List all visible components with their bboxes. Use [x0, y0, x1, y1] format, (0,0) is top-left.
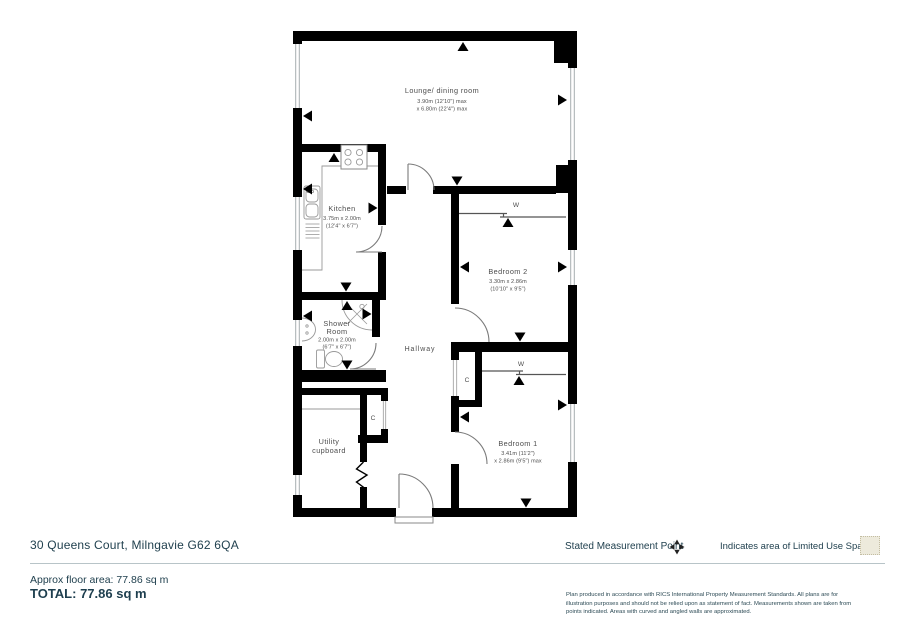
- basin-icon: [302, 318, 316, 341]
- bedroom1-door: [455, 432, 487, 464]
- limited-use-swatch: [860, 536, 880, 555]
- lounge-dim2: x 6.80m (22'4") max: [417, 107, 468, 113]
- bedroom1-wardrobe: [482, 371, 566, 375]
- total-floor-area: TOTAL: 77.86 sq m: [30, 586, 147, 601]
- measurement-arrow: [521, 499, 532, 508]
- bedroom1-label: Bedroom 1: [498, 439, 537, 448]
- measurement-arrow: [460, 262, 469, 273]
- measurement-point-icon: [669, 539, 685, 555]
- utility-door-squiggle: [357, 462, 368, 488]
- bedroom1-dim2: x 2.86m (9'5") max: [494, 459, 542, 465]
- legend-stated-measurement-point: Stated Measurement Point: [565, 541, 683, 552]
- drainer-icon: [306, 224, 320, 238]
- measurement-arrow: [329, 153, 340, 162]
- measurement-arrow: [303, 311, 312, 322]
- measurement-arrow: [303, 111, 312, 122]
- kitchen-dim1: 3.75m x 2.00m: [323, 216, 361, 222]
- bedroom2-label: Bedroom 2: [488, 267, 527, 276]
- bedroom1-wardrobe-label: W: [518, 361, 525, 368]
- window: [293, 42, 302, 110]
- floorplan-page: Lounge/ dining room 3.90m (12'10") max x…: [0, 0, 900, 636]
- cupboard1-door: [383, 401, 385, 429]
- shower-room-label-2: Room: [326, 327, 347, 336]
- measurement-arrow: [514, 376, 525, 385]
- room-labels: Lounge/ dining room 3.90m (12'10") max x…: [312, 86, 542, 465]
- bedroom2-wardrobe: [459, 214, 566, 218]
- property-address: 30 Queens Court, Milngavie G62 6QA: [30, 538, 239, 552]
- measurement-arrow: [558, 262, 567, 273]
- bedroom2-wardrobe-label: W: [513, 202, 520, 209]
- window: [293, 195, 302, 252]
- approx-floor-area: Approx floor area: 77.86 sq m: [30, 574, 168, 586]
- legend-limited-use-space: Indicates area of Limited Use Space: [720, 541, 873, 552]
- measurement-arrow: [458, 42, 469, 51]
- bedroom1-dim1: 3.41m (11'2"): [501, 451, 535, 457]
- lounge-label: Lounge/ dining room: [405, 86, 479, 95]
- measurement-arrow: [460, 412, 469, 423]
- bedroom2-dim1: 3.30m x 2.86m: [489, 279, 527, 285]
- measurement-arrow: [515, 333, 526, 342]
- shower-room-dim1: 2.00m x 2.00m: [318, 338, 356, 344]
- measurement-arrow: [369, 203, 378, 214]
- cupboard2-label: C: [465, 377, 470, 384]
- measurement-arrow: [452, 177, 463, 186]
- shower-room-door: [350, 343, 376, 369]
- toilet-icon: [317, 350, 343, 368]
- cupboard1-label: C: [371, 415, 376, 422]
- floor-plan: Lounge/ dining room 3.90m (12'10") max x…: [0, 0, 900, 530]
- kitchen-label: Kitchen: [328, 204, 355, 213]
- window: [568, 66, 577, 162]
- measurement-arrow: [342, 361, 353, 370]
- shower-room-dim2: (6'7" x 6'7"): [322, 345, 351, 351]
- measurement-arrow: [342, 301, 353, 310]
- entrance-door: [395, 474, 433, 523]
- kitchen-dim2: (12'4" x 6'7"): [326, 224, 358, 230]
- measurement-arrow: [558, 400, 567, 411]
- lounge-dim1: 3.90m (12'10") max: [417, 99, 467, 105]
- rics-disclaimer: Plan produced in accordance with RICS In…: [566, 591, 866, 617]
- utility-label-2: cupboard: [312, 446, 346, 455]
- window: [293, 318, 302, 348]
- bedroom2-door: [455, 308, 489, 342]
- cupboard2-door: [451, 358, 459, 398]
- window: [568, 402, 577, 464]
- divider-rule: [30, 563, 885, 564]
- utility-label-1: Utility: [319, 437, 340, 446]
- measurement-arrow: [363, 309, 372, 320]
- hallway-label: Hallway: [405, 346, 436, 353]
- hob-icon: [341, 145, 367, 169]
- bedroom2-dim2: (10'10" x 9'5"): [490, 287, 525, 293]
- kitchen-door: [356, 226, 382, 252]
- measurement-arrow: [341, 283, 352, 292]
- window: [293, 473, 302, 497]
- lounge-hallway-door: [408, 164, 434, 190]
- measurement-arrow: [503, 218, 514, 227]
- window: [568, 248, 577, 287]
- measurement-arrow: [558, 95, 567, 106]
